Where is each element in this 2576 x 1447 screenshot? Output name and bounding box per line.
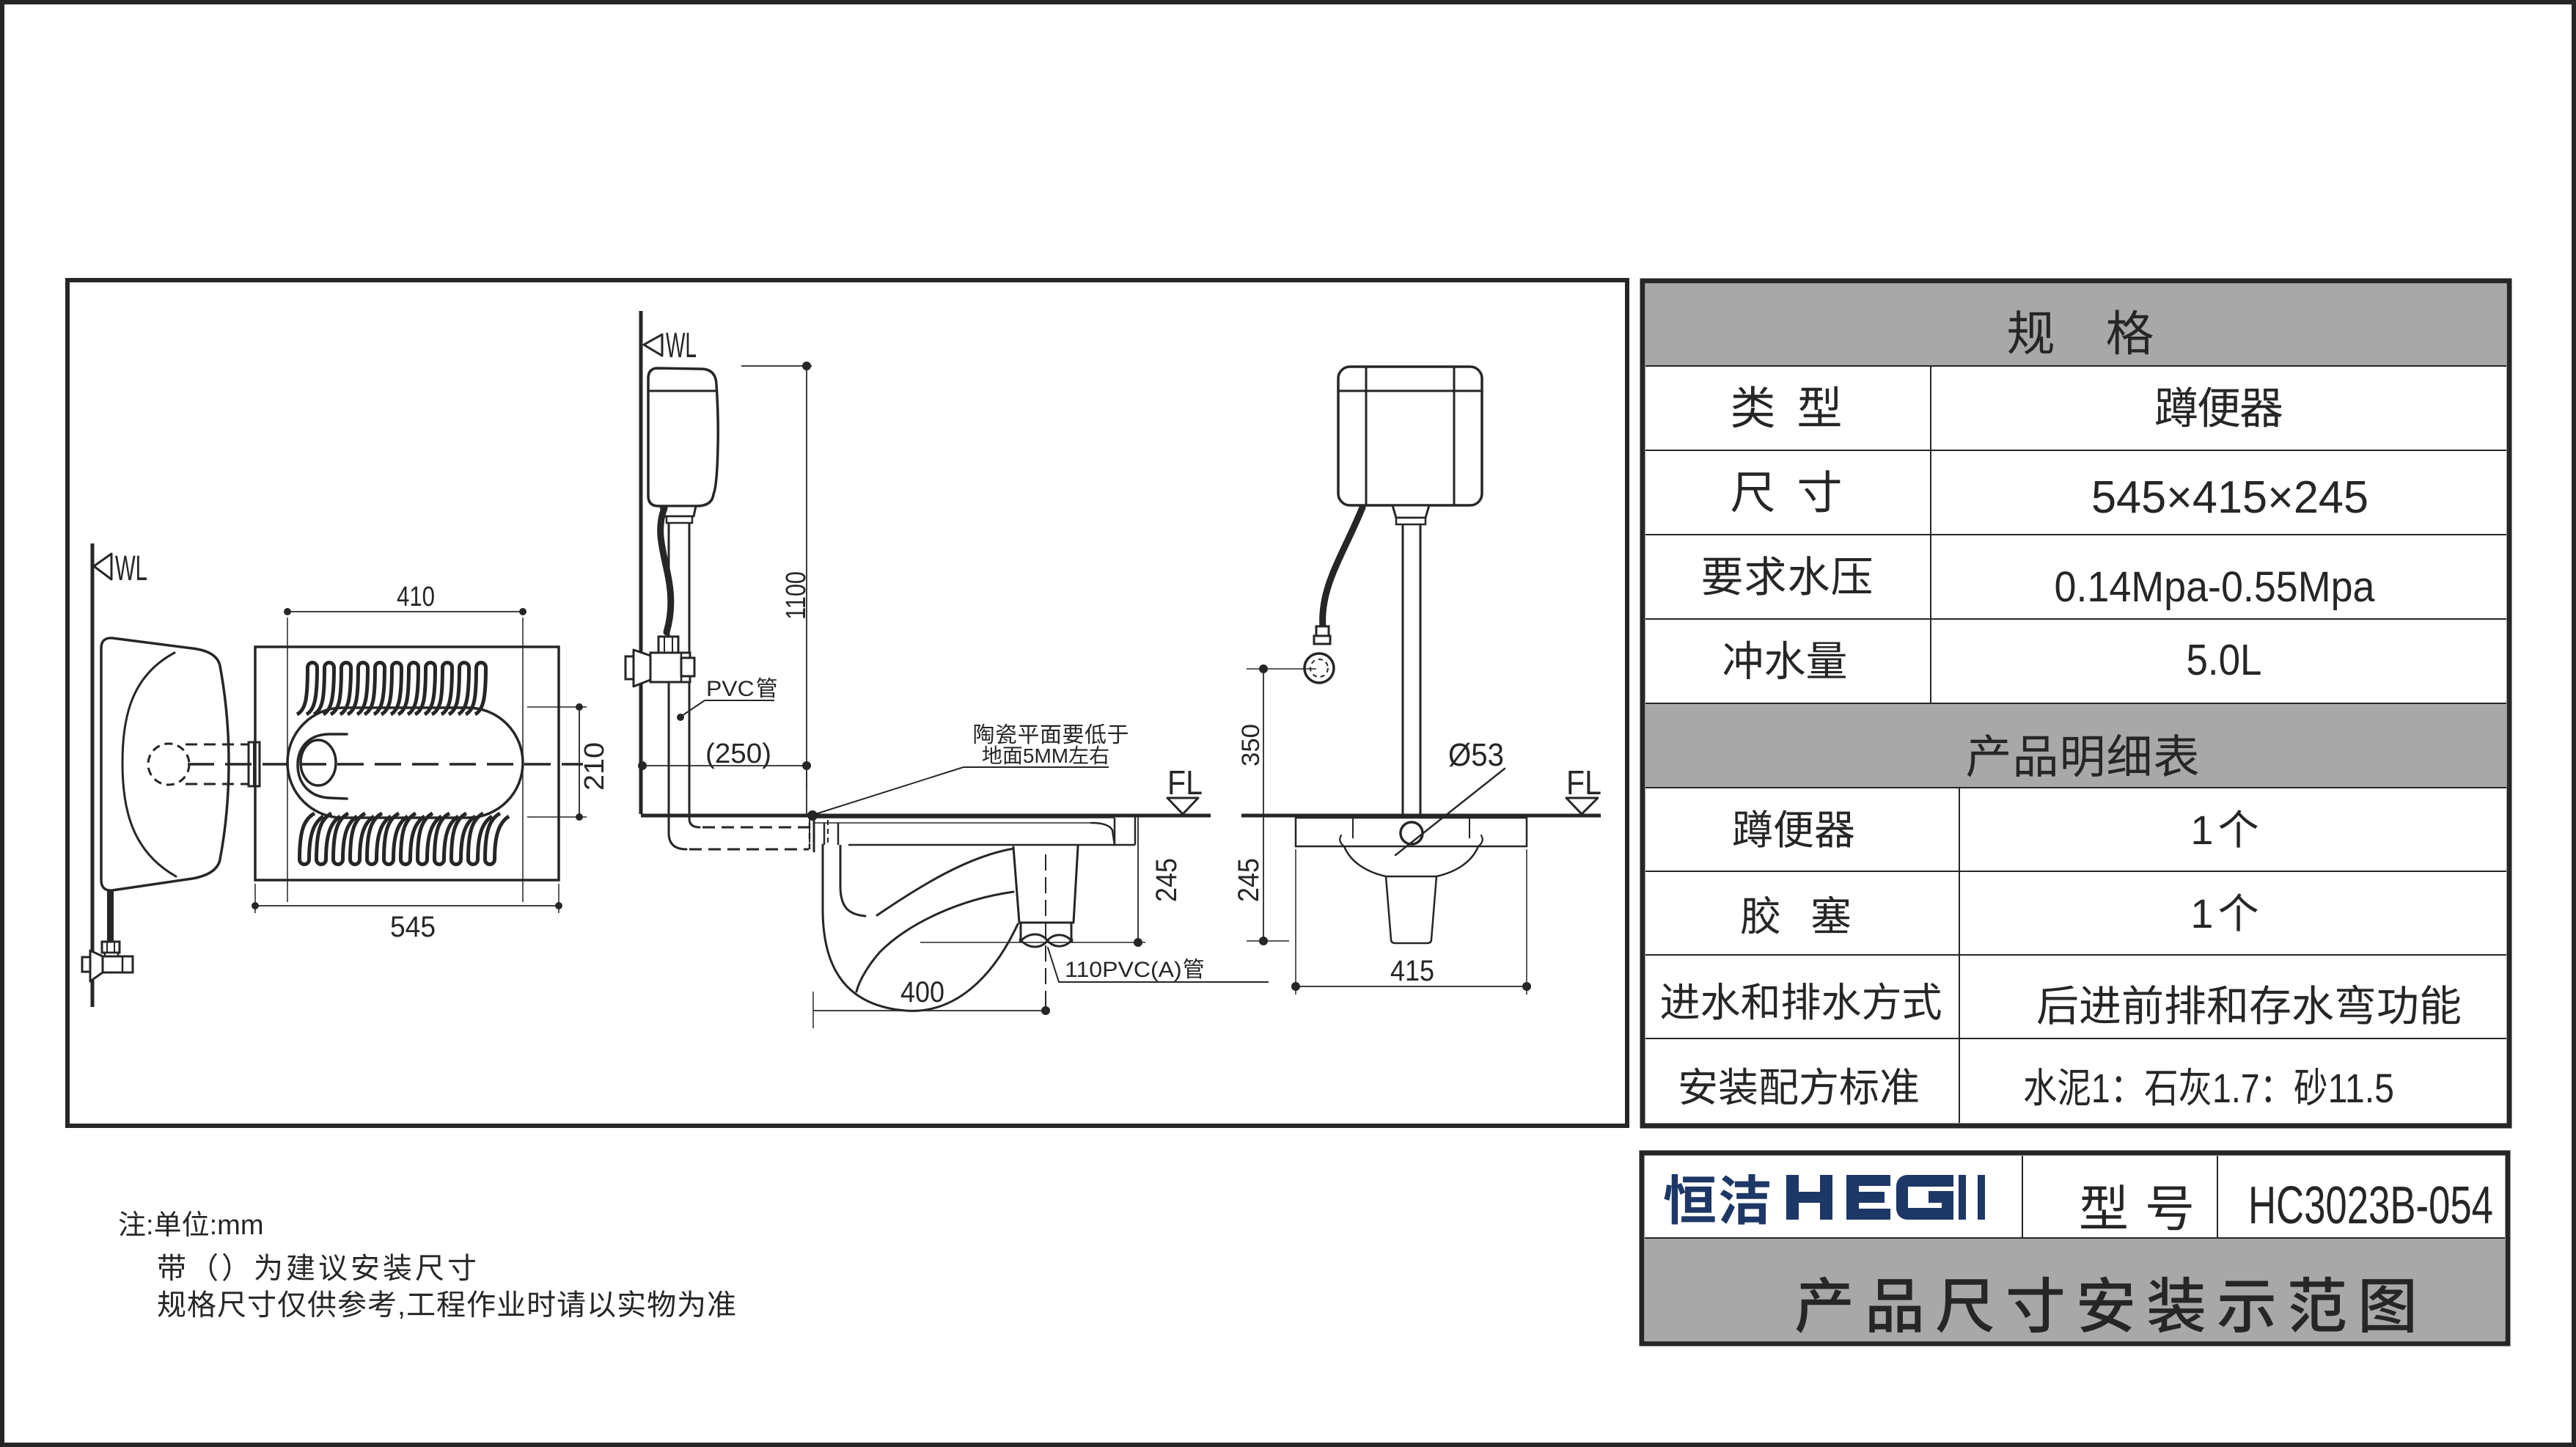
svg-text::: :: [146, 1210, 154, 1241]
svg-text:410: 410: [397, 582, 435, 612]
svg-text:415: 415: [1390, 955, 1434, 987]
svg-text:1: 1: [2091, 1065, 2110, 1111]
svg-text:,: ,: [397, 1289, 406, 1322]
svg-text:245: 245: [1151, 858, 1183, 902]
svg-text:WL: WL: [115, 549, 147, 588]
svg-text:1100: 1100: [781, 571, 812, 620]
svg-text:FL: FL: [1167, 763, 1203, 802]
svg-text:545: 545: [390, 911, 436, 943]
svg-text:0.14Mpa-0.55Mpa: 0.14Mpa-0.55Mpa: [2055, 563, 2376, 611]
svg-text:110PVC(A): 110PVC(A): [1065, 958, 1182, 982]
svg-text:350: 350: [1237, 724, 1265, 766]
svg-text:WL: WL: [666, 326, 697, 365]
svg-text:5MM: 5MM: [1023, 744, 1068, 767]
svg-text:1: 1: [2190, 807, 2213, 853]
svg-text:5.0L: 5.0L: [2187, 636, 2262, 684]
svg-text:210: 210: [579, 742, 610, 791]
svg-text:400: 400: [900, 976, 944, 1008]
svg-text:Ø53: Ø53: [1448, 737, 1504, 773]
svg-text:FL: FL: [1566, 763, 1601, 802]
svg-text:11.5: 11.5: [2328, 1065, 2394, 1111]
svg-text:245: 245: [1233, 858, 1265, 902]
svg-text::mm: :mm: [210, 1210, 264, 1241]
svg-text:1.7: 1.7: [2212, 1065, 2260, 1111]
svg-text:545×415×245: 545×415×245: [2091, 472, 2368, 523]
svg-text:(250): (250): [705, 739, 771, 769]
svg-text:HC3023B-054: HC3023B-054: [2248, 1176, 2493, 1235]
svg-text:PVC: PVC: [706, 677, 755, 701]
svg-text:1: 1: [2190, 890, 2213, 937]
